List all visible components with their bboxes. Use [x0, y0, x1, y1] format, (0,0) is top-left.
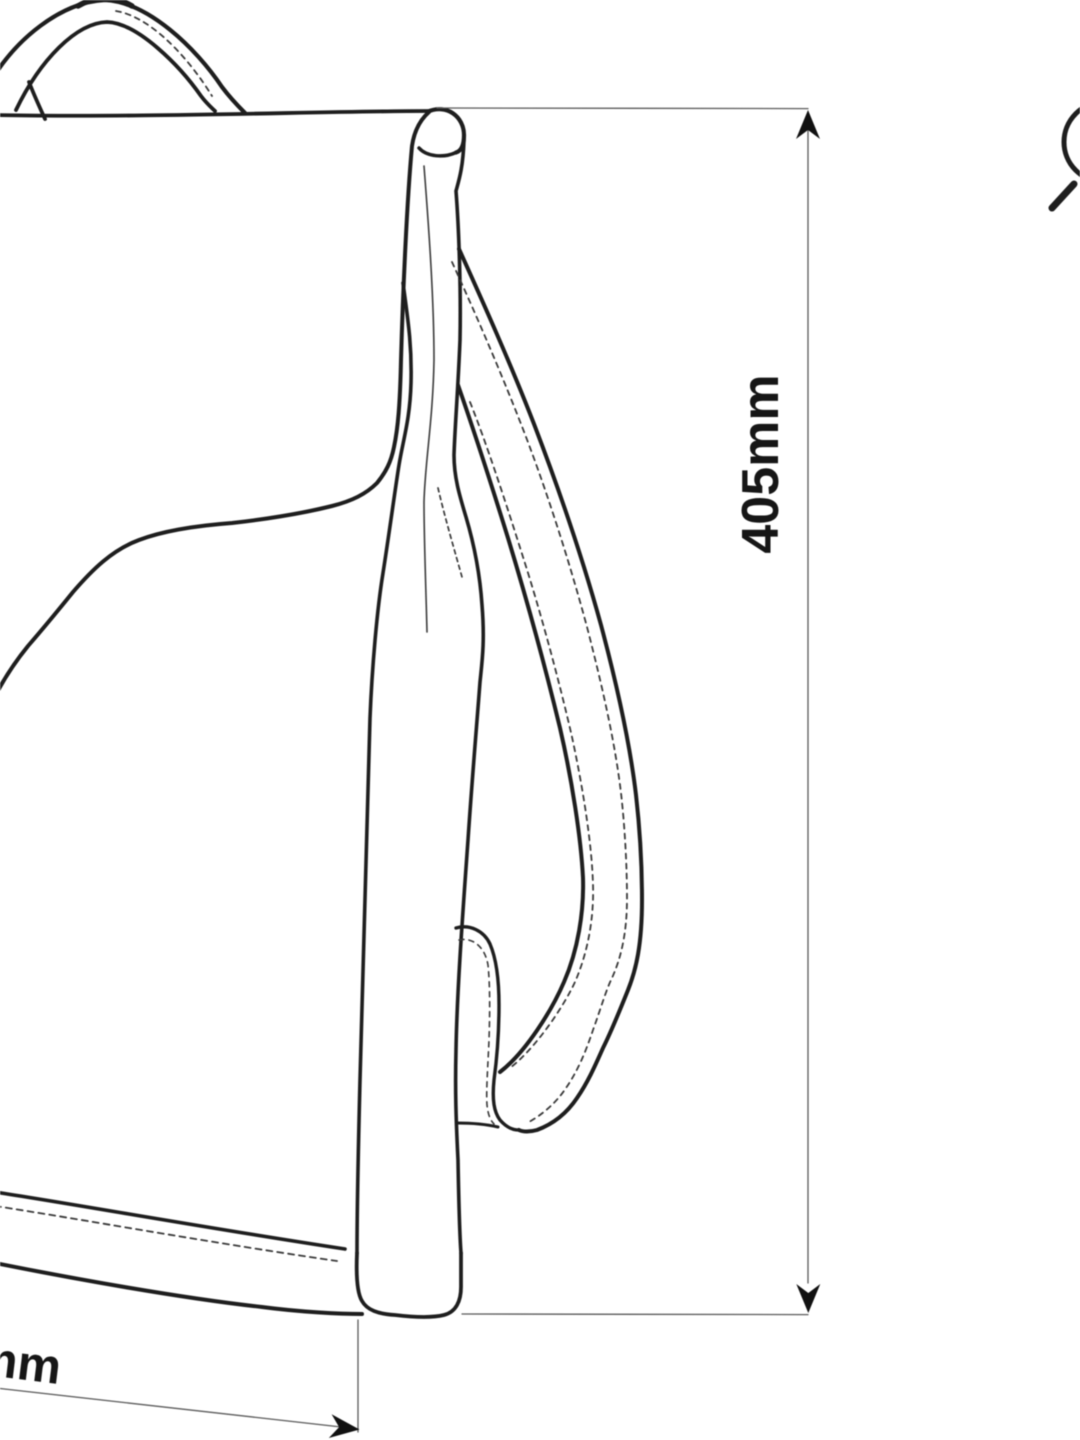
svg-text:290mm: 290mm [0, 1321, 64, 1395]
svg-text:405mm: 405mm [732, 374, 790, 553]
